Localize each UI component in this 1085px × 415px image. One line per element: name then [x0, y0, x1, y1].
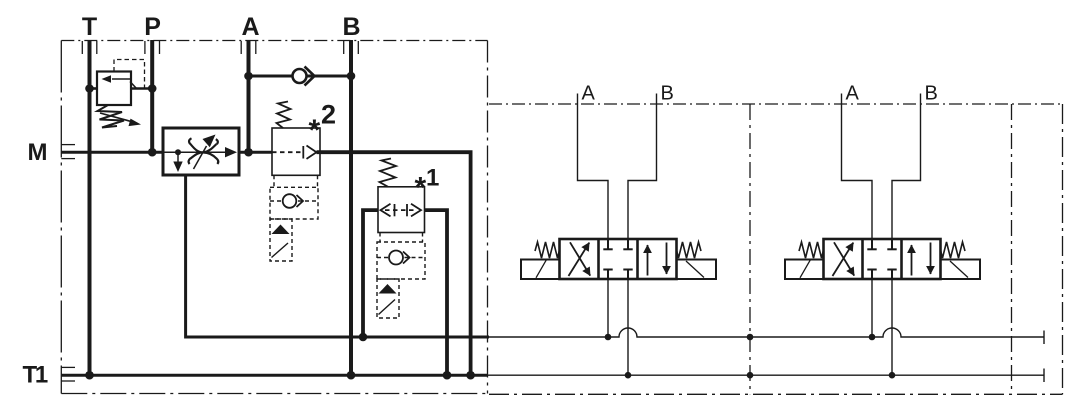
svg-text:T1: T1	[23, 362, 48, 389]
svg-text:B: B	[661, 83, 674, 105]
svg-text:*: *	[415, 172, 427, 205]
svg-text:A: A	[582, 83, 596, 105]
svg-text:M: M	[28, 139, 48, 166]
svg-text:P: P	[144, 13, 161, 41]
svg-text:B: B	[342, 13, 360, 41]
svg-text:2: 2	[321, 99, 336, 129]
svg-text:1: 1	[426, 165, 439, 192]
svg-text:T: T	[82, 13, 97, 41]
svg-text:*: *	[309, 114, 321, 147]
svg-text:A: A	[241, 13, 259, 41]
